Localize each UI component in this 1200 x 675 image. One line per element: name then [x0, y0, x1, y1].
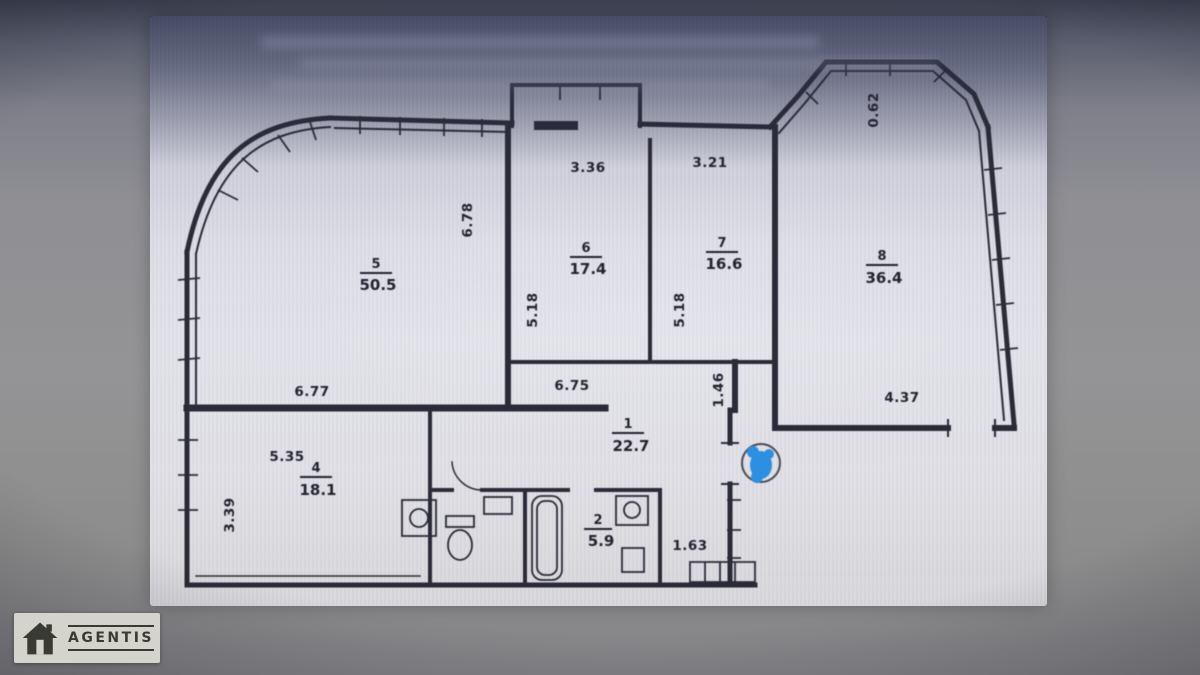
room-1-area: 22.7 [612, 437, 649, 455]
room-6-number: 6 [581, 241, 590, 256]
logo-brand-text: AGENTIS [68, 625, 154, 651]
house-icon [20, 618, 60, 658]
room-1-number: 1 [623, 417, 632, 432]
room-8-area: 36.4 [865, 269, 902, 287]
room-6-area: 17.4 [569, 260, 606, 278]
dim-room5-bottom: 6.77 [294, 384, 329, 400]
room-7-number: 7 [717, 236, 726, 251]
dim-room7-side: 5.18 [672, 292, 688, 327]
room-2-number: 2 [593, 513, 602, 528]
kitchen-sink [616, 496, 648, 525]
dim-room4-side: 3.39 [222, 497, 238, 532]
room-5-area: 50.5 [359, 276, 396, 294]
floor-plan-drawing: 5 50.5 6 17.4 7 16.6 8 36.4 1 22.7 4 18.… [0, 0, 1200, 675]
dim-room7-top: 3.21 [692, 155, 727, 171]
dim-hall-top: 6.75 [554, 378, 589, 394]
room-labels: 5 50.5 6 17.4 7 16.6 8 36.4 1 22.7 4 18.… [299, 236, 902, 550]
walls [187, 62, 1014, 585]
room-4-number: 4 [311, 461, 320, 476]
room-5-number: 5 [371, 257, 380, 272]
agentis-logo: AGENTIS [14, 613, 160, 663]
dim-room5-top: 6.78 [460, 202, 476, 237]
toilet [446, 516, 474, 527]
dim-corridor: 1.63 [672, 538, 707, 554]
pedestal [622, 548, 644, 572]
steps [690, 562, 755, 582]
room-4-area: 18.1 [299, 481, 336, 499]
sink [484, 497, 512, 514]
dim-room6-top: 3.36 [570, 160, 605, 176]
door-arc [452, 462, 482, 490]
dim-bay-side: 0.62 [866, 92, 882, 127]
dim-room4-top: 5.35 [269, 449, 304, 465]
room-2-area: 5.9 [588, 532, 615, 550]
room-8-number: 8 [877, 249, 886, 264]
dim-hall-side: 1.46 [711, 372, 727, 407]
dim-room6-side: 5.18 [525, 292, 541, 327]
blue-location-marker [742, 444, 780, 483]
balcony [512, 85, 640, 126]
dim-room8-bottom: 4.37 [884, 390, 919, 406]
room-7-area: 16.6 [705, 255, 742, 273]
balcony-door-sill [534, 121, 578, 130]
